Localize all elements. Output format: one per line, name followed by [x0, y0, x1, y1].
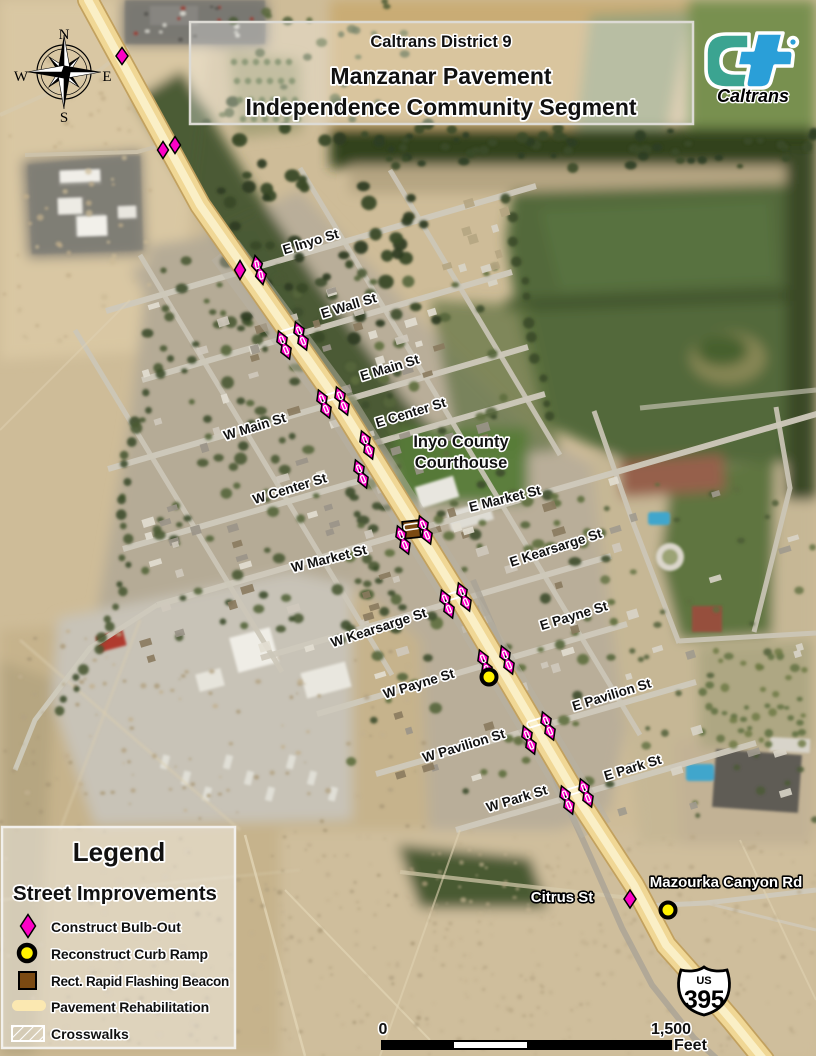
svg-text:N: N	[59, 27, 70, 43]
svg-text:Caltrans District 9: Caltrans District 9	[370, 33, 511, 51]
svg-text:Inyo County: Inyo County	[413, 433, 509, 451]
svg-text:Construct Bulb-Out: Construct Bulb-Out	[51, 919, 181, 935]
svg-text:0: 0	[379, 1021, 388, 1038]
svg-text:Reconstruct Curb Ramp: Reconstruct Curb Ramp	[51, 946, 208, 962]
svg-text:1,500: 1,500	[651, 1021, 691, 1038]
svg-text:Courthouse: Courthouse	[415, 454, 508, 472]
svg-text:Feet: Feet	[674, 1037, 708, 1054]
svg-text:Legend: Legend	[73, 837, 165, 867]
svg-text:Independence Community Segment: Independence Community Segment	[245, 94, 636, 120]
svg-text:Pavement Rehabilitation: Pavement Rehabilitation	[51, 999, 209, 1015]
svg-text:Street Improvements: Street Improvements	[13, 882, 217, 905]
svg-text:Crosswalks: Crosswalks	[51, 1026, 129, 1042]
svg-text:S: S	[60, 110, 68, 126]
svg-text:Caltrans: Caltrans	[717, 86, 789, 106]
svg-text:395: 395	[684, 986, 725, 1014]
svg-text:Citrus St: Citrus St	[531, 889, 594, 906]
svg-text:W: W	[14, 69, 29, 85]
svg-text:E: E	[102, 69, 111, 85]
svg-text:Manzanar Pavement: Manzanar Pavement	[330, 63, 551, 89]
svg-text:Rect. Rapid Flashing Beacon: Rect. Rapid Flashing Beacon	[51, 974, 229, 989]
svg-text:Mazourka Canyon Rd: Mazourka Canyon Rd	[650, 874, 803, 891]
